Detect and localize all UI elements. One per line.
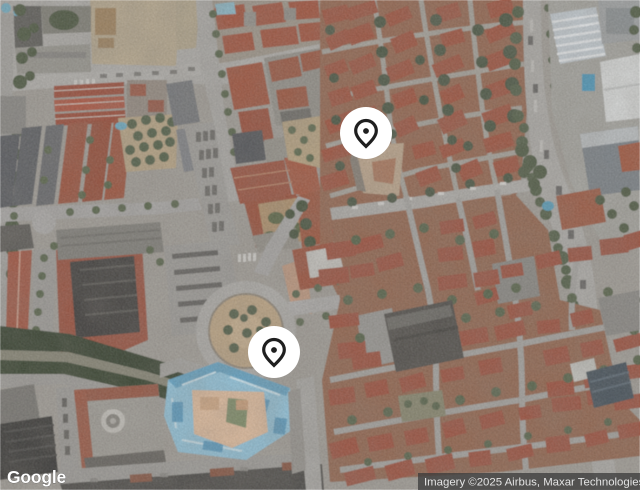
svg-text:Imagery ©2025 Airbus, Maxar Te: Imagery ©2025 Airbus, Maxar Technologies <box>424 477 640 489</box>
svg-text:Google: Google <box>7 467 67 487</box>
